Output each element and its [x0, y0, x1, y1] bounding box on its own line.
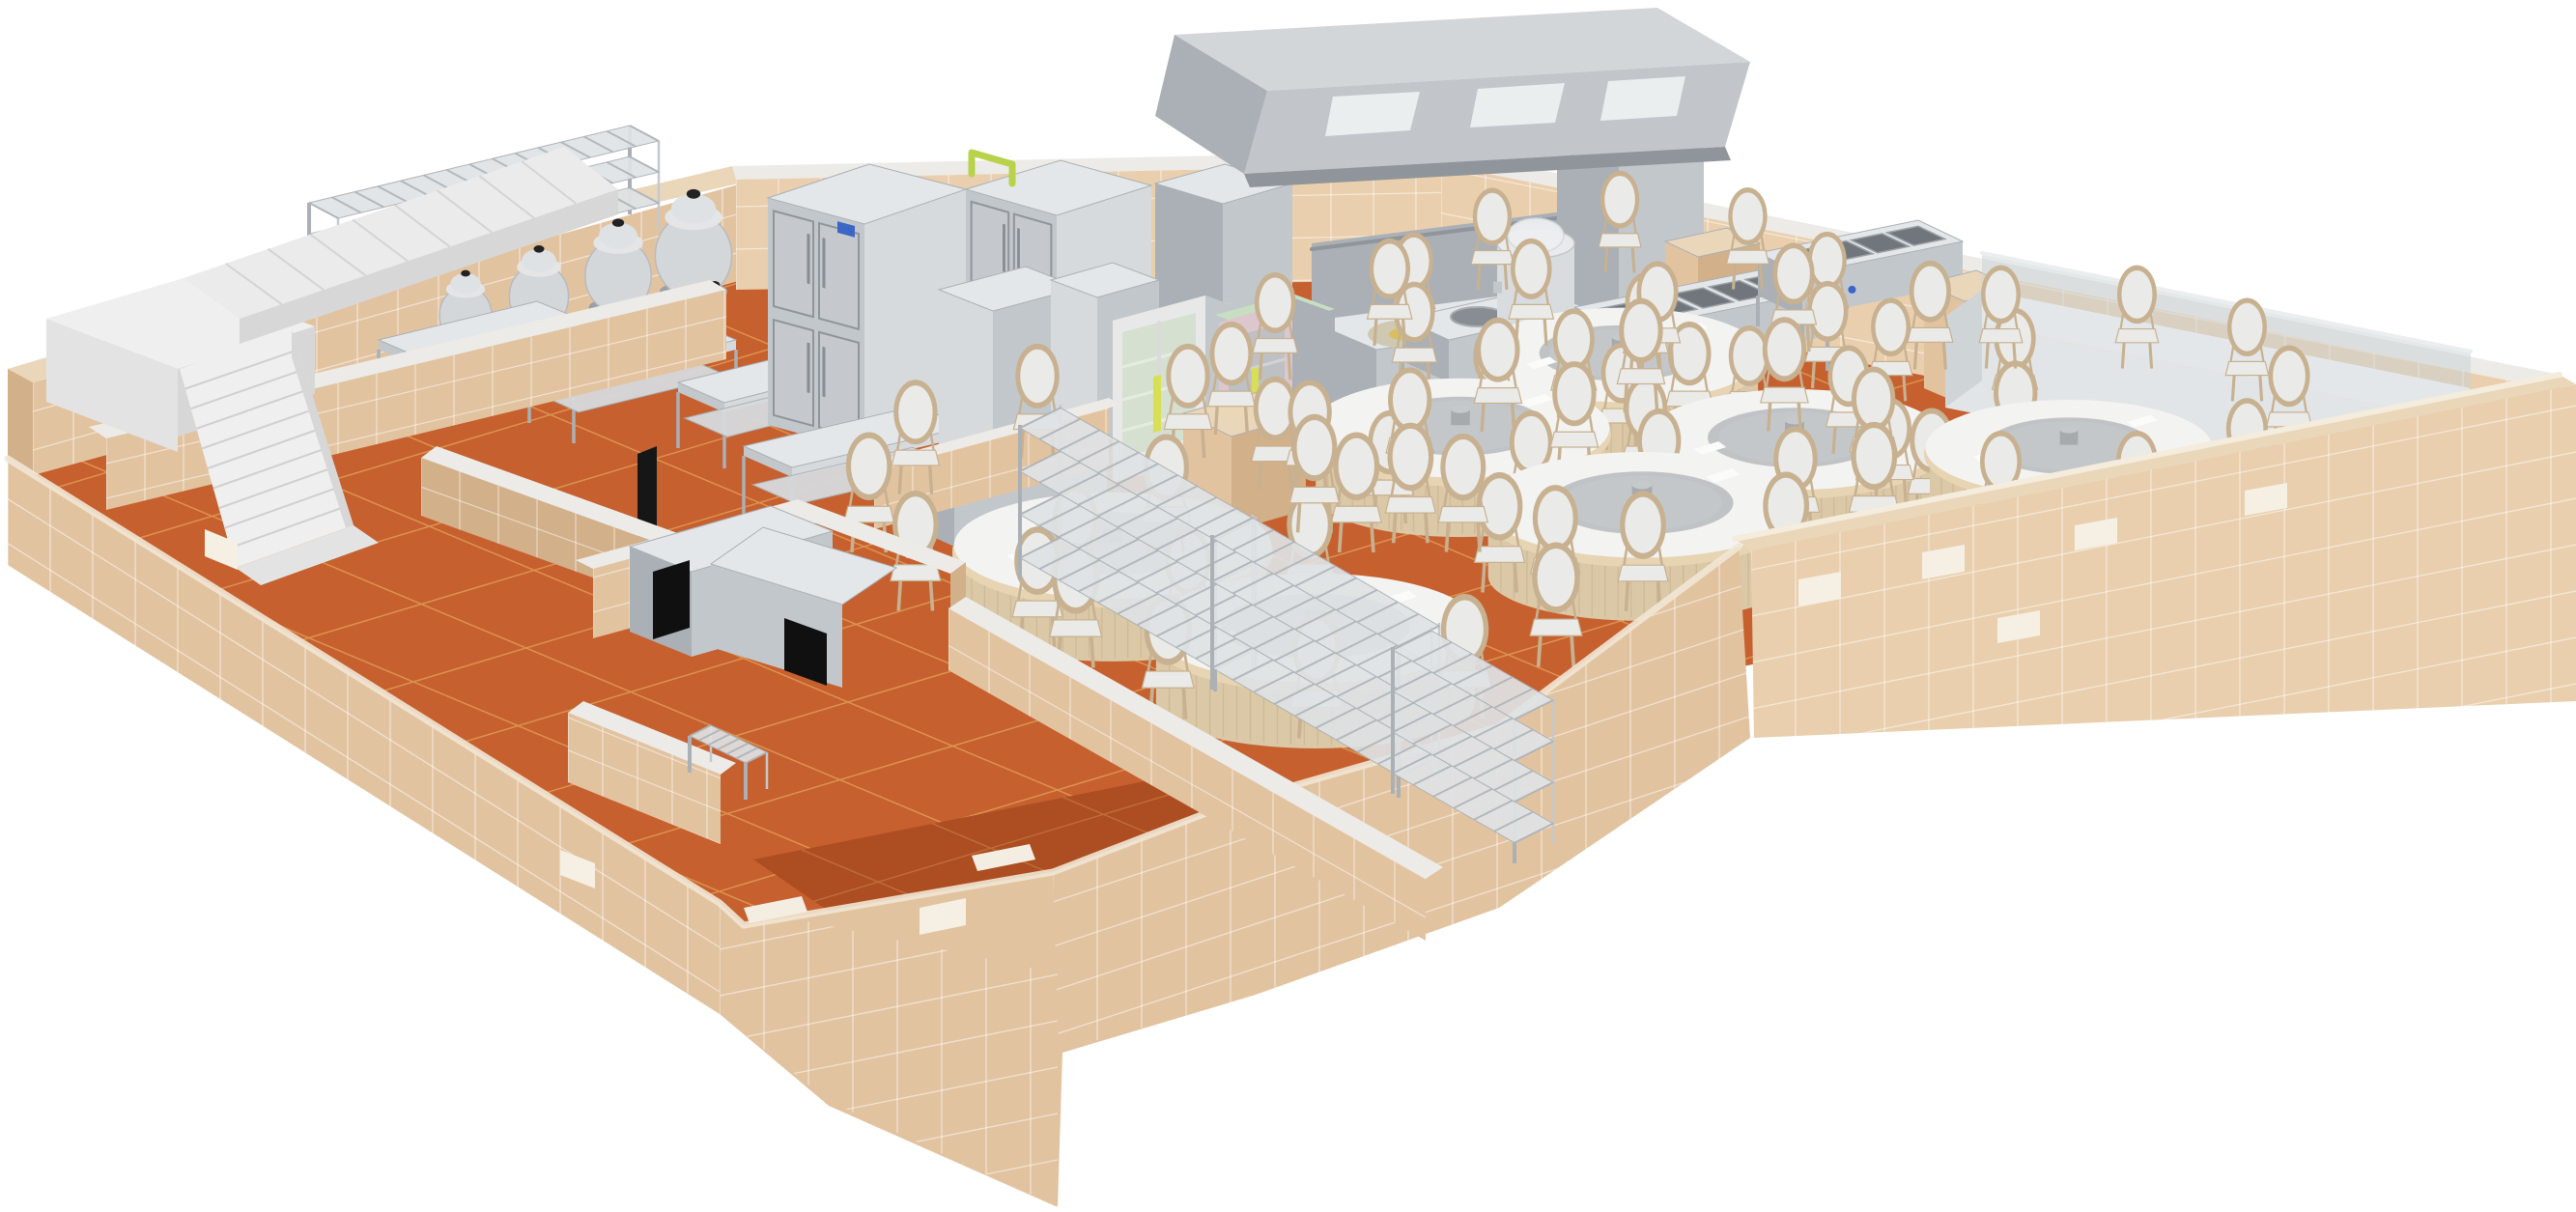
hood-light-1: [1325, 92, 1420, 136]
hood-light-3: [1600, 76, 1685, 121]
floorplan-3d-render: [0, 0, 2576, 1212]
cooler-1-handles: [1153, 375, 1161, 433]
render-viewport: [0, 0, 2576, 1212]
l-cabinet-open-door-1: [653, 560, 690, 639]
hood-light-2: [1470, 83, 1565, 127]
